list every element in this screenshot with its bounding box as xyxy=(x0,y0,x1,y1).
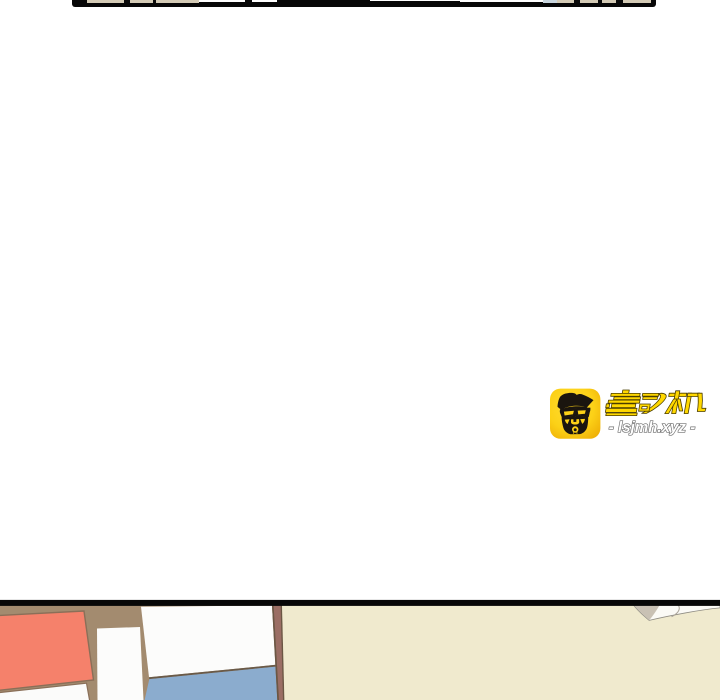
svg-text:- lsjmh.xyz -: - lsjmh.xyz - xyxy=(609,419,696,436)
